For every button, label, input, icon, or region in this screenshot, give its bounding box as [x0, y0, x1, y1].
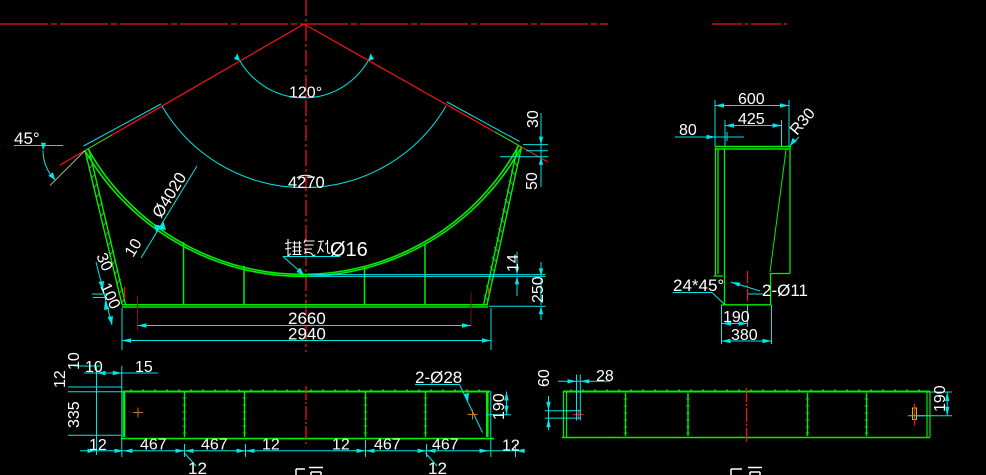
svg-text:30: 30 — [525, 110, 542, 128]
svg-text:15: 15 — [135, 359, 153, 376]
svg-text:4270: 4270 — [288, 174, 325, 192]
svg-text:467: 467 — [140, 437, 167, 454]
svg-text:Ø16: Ø16 — [330, 239, 368, 261]
svg-text:28: 28 — [596, 368, 614, 385]
svg-text:12: 12 — [332, 437, 350, 454]
svg-text:600: 600 — [738, 91, 765, 108]
svg-text:12: 12 — [89, 437, 107, 454]
svg-text:120°: 120° — [289, 85, 322, 102]
svg-text:467: 467 — [432, 437, 459, 454]
svg-text:190: 190 — [932, 385, 949, 412]
svg-text:10: 10 — [66, 352, 83, 370]
svg-text:10: 10 — [85, 359, 103, 376]
svg-text:50: 50 — [524, 172, 541, 190]
svg-text:12: 12 — [52, 370, 69, 388]
svg-text:14: 14 — [505, 254, 522, 272]
svg-text:80: 80 — [679, 122, 697, 139]
svg-text:250: 250 — [530, 276, 547, 303]
svg-text:467: 467 — [374, 437, 401, 454]
svg-text:425: 425 — [738, 111, 765, 128]
svg-text:467: 467 — [201, 437, 228, 454]
svg-text:335: 335 — [66, 401, 83, 428]
svg-text:12: 12 — [188, 459, 207, 475]
svg-text:12: 12 — [428, 459, 447, 475]
svg-text:12: 12 — [502, 438, 520, 455]
svg-text:380: 380 — [731, 327, 758, 344]
svg-text:2940: 2940 — [288, 325, 326, 344]
svg-text:12: 12 — [262, 437, 280, 454]
svg-text:2-Ø11: 2-Ø11 — [762, 281, 808, 300]
svg-text:60: 60 — [536, 369, 553, 387]
svg-text:190: 190 — [723, 309, 750, 326]
svg-text:190: 190 — [491, 393, 508, 420]
